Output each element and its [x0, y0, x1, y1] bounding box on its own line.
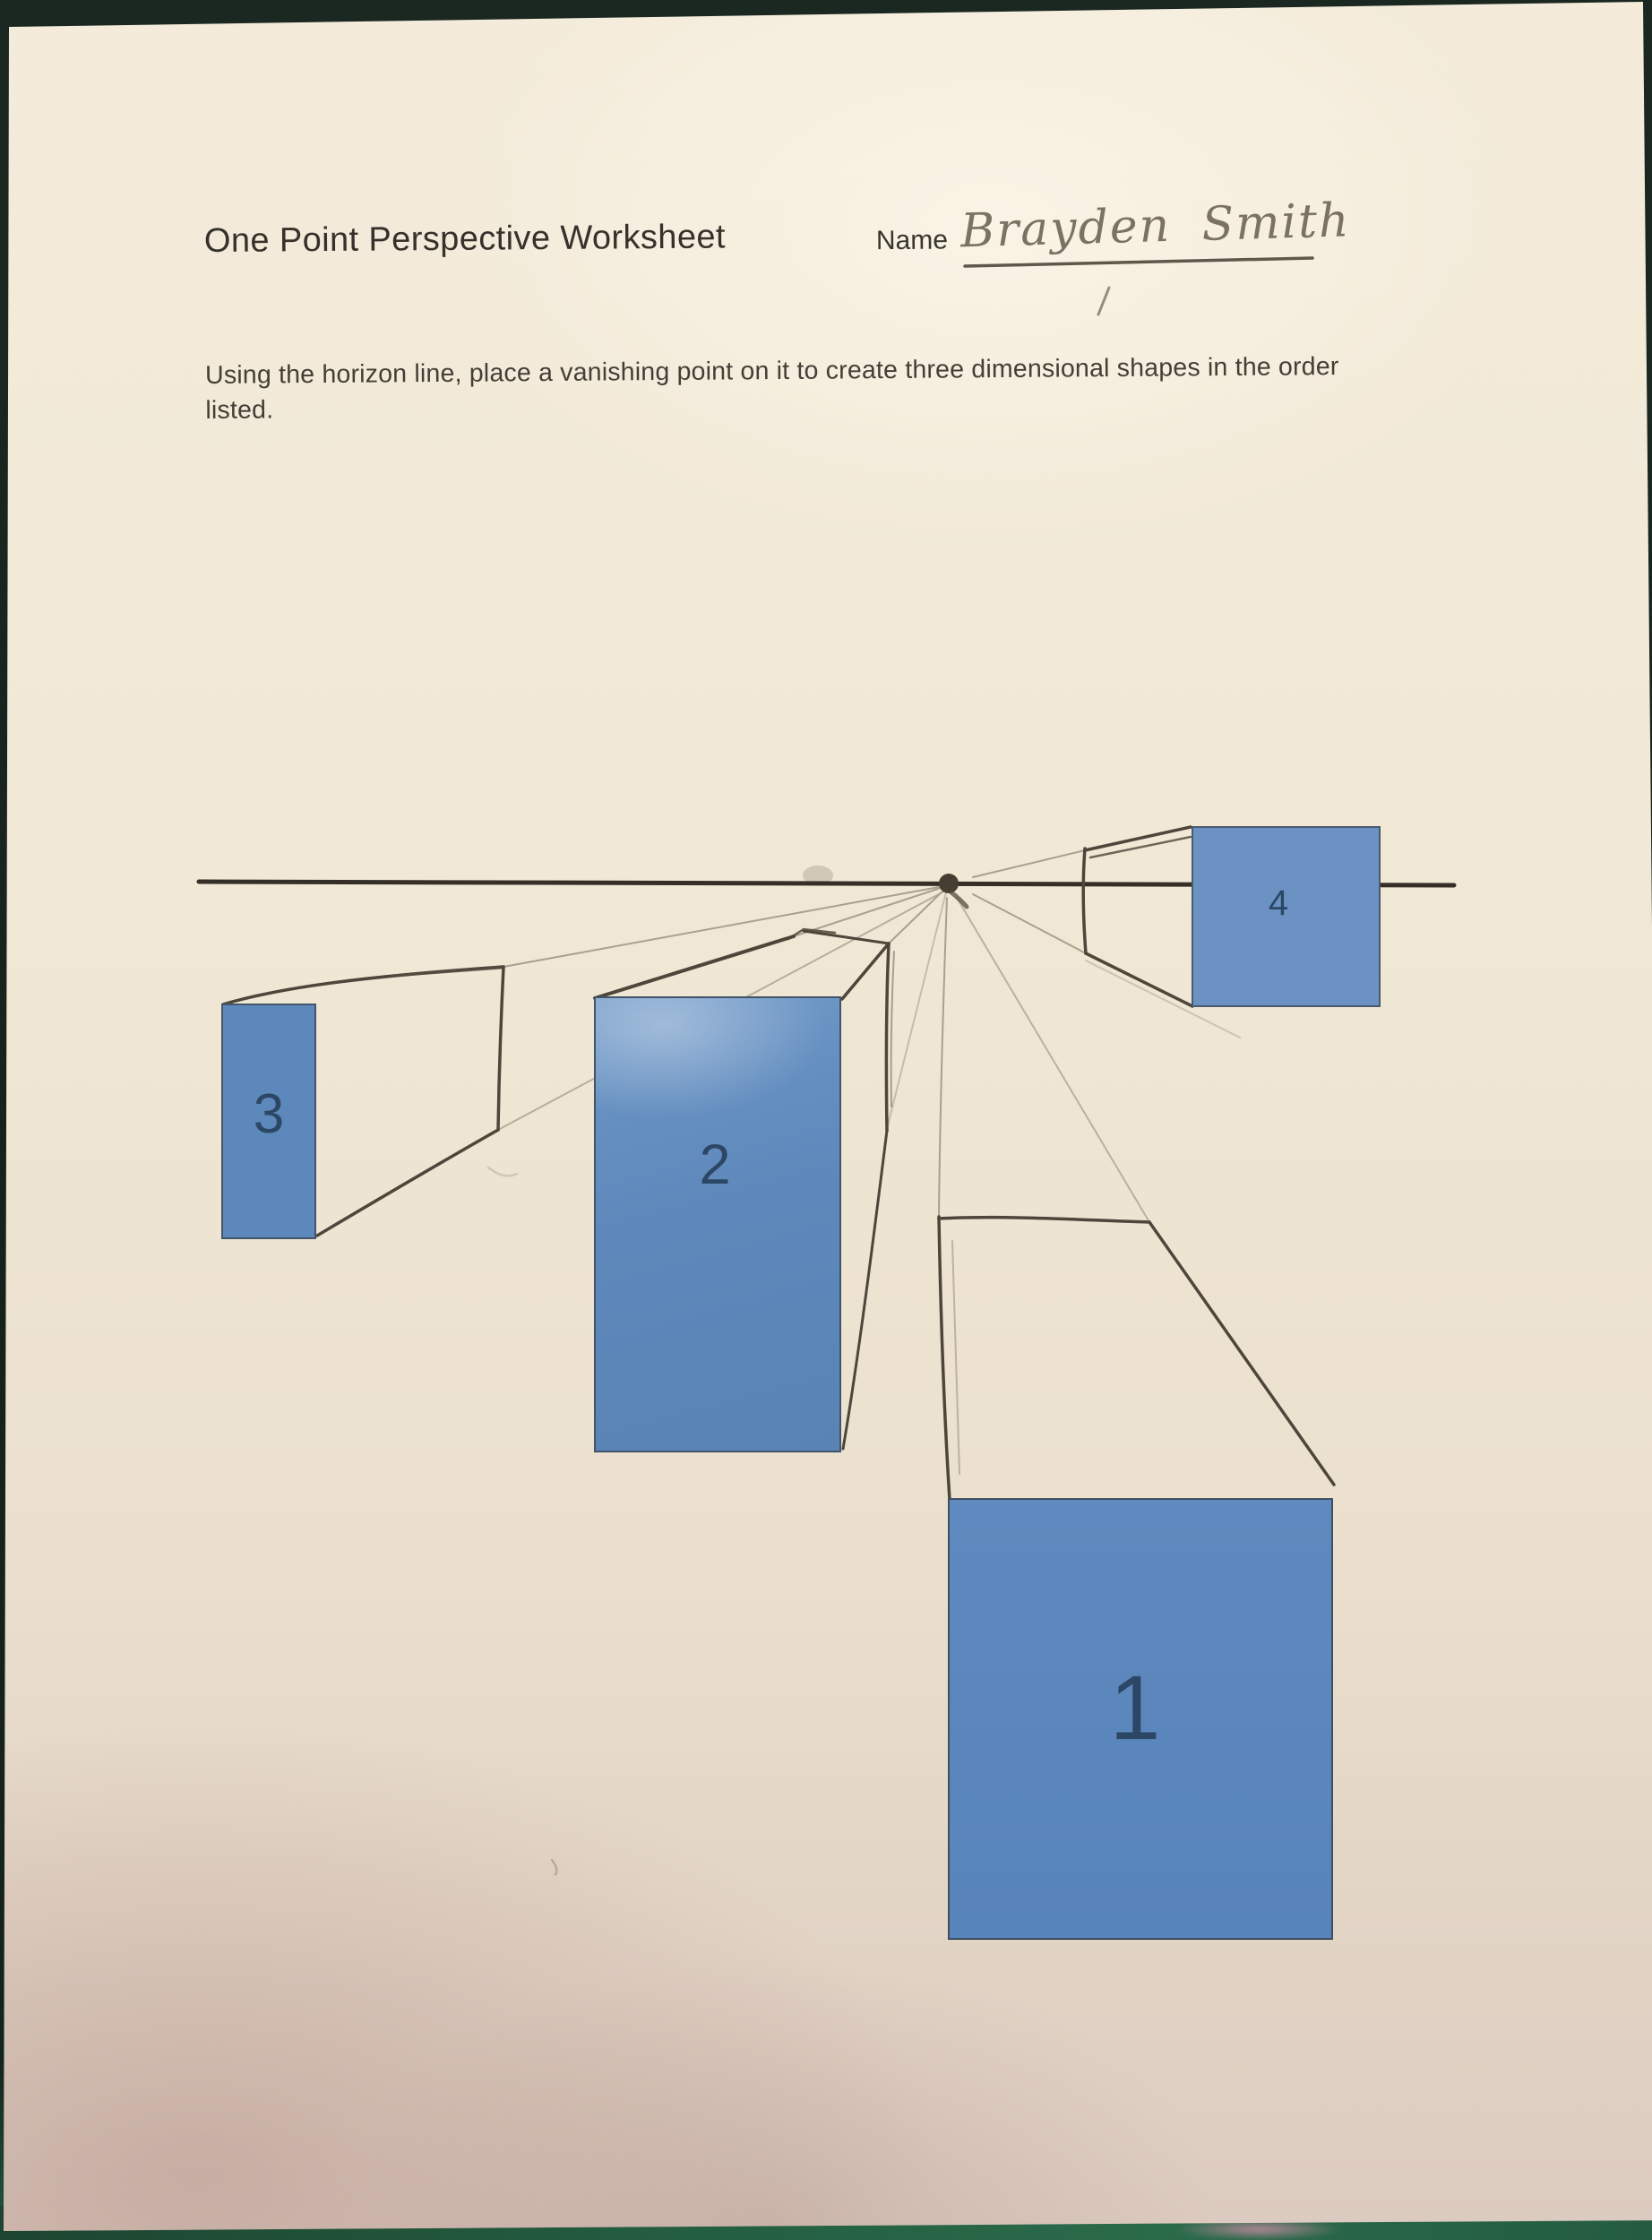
box-4-pencil-outline — [1083, 827, 1192, 1006]
box-number-4: 4 — [1249, 883, 1308, 924]
photo-of-worksheet: One Point Perspective Worksheet Name Usi… — [0, 0, 1652, 2240]
box-number-1: 1 — [1072, 1651, 1198, 1764]
box-number-3: 3 — [231, 1081, 306, 1149]
box-1-pencil-outline — [939, 1217, 1334, 1500]
worksheet-paper: One Point Perspective Worksheet Name Usi… — [0, 0, 1652, 2240]
box-number-2: 2 — [677, 1129, 753, 1201]
stray-pencil-mark — [552, 1860, 556, 1874]
stray-pencil-smudge — [488, 1167, 517, 1176]
stray-slash-mark — [1098, 288, 1109, 314]
blue-square-2 — [594, 996, 841, 1452]
name-underline — [965, 258, 1312, 266]
